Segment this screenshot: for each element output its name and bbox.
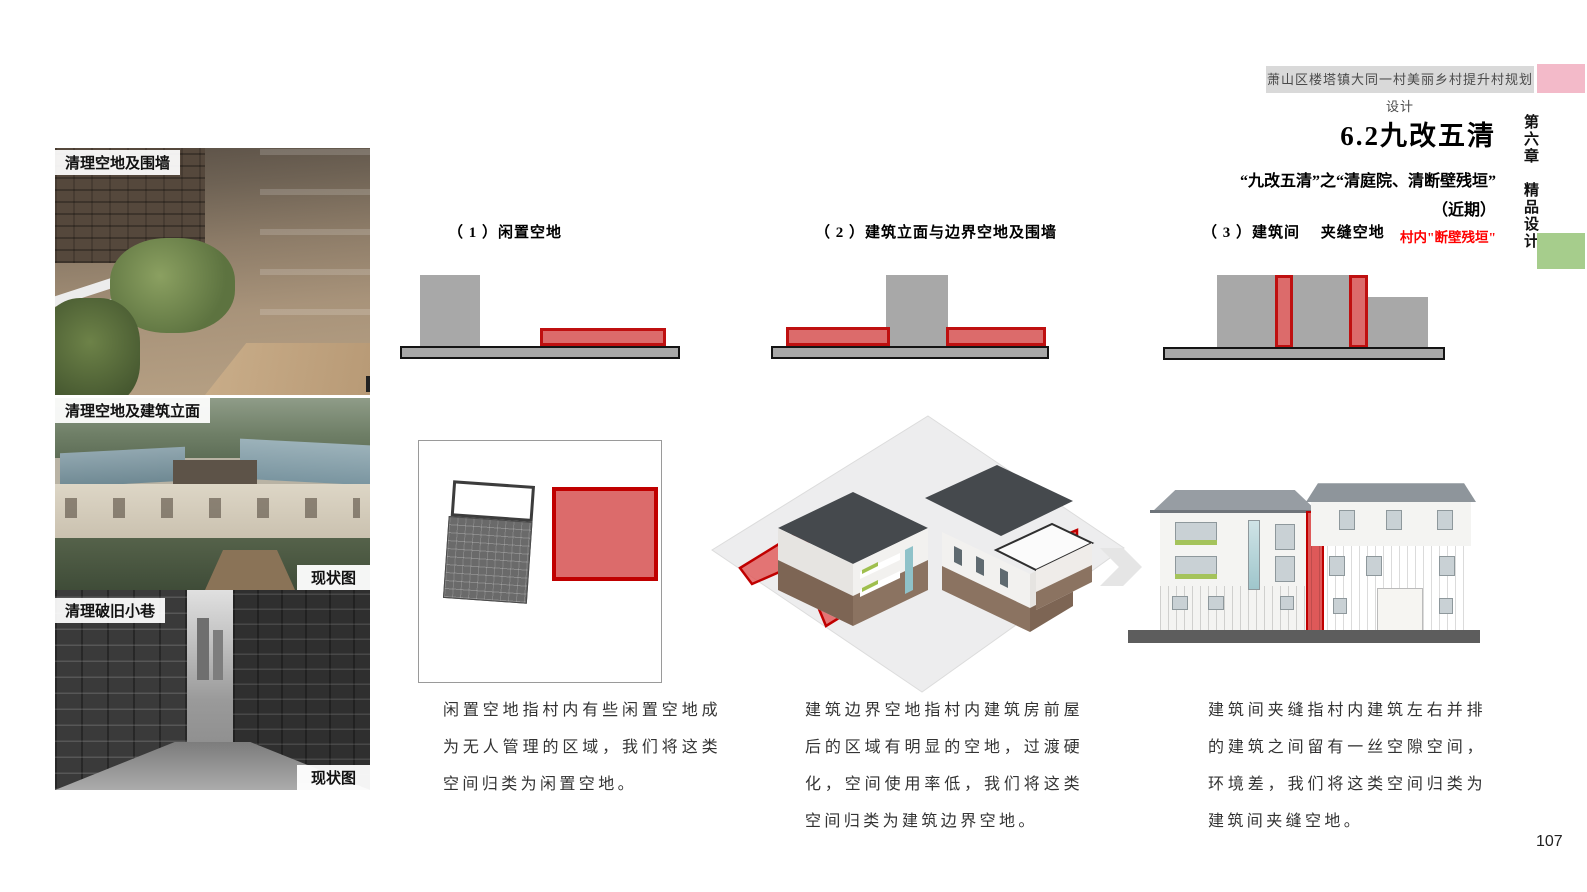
diagram3-ground-bar	[1163, 347, 1445, 360]
right-building-window	[1333, 598, 1347, 614]
right-building-garage	[1377, 588, 1423, 633]
elevation-ground-bar	[1128, 630, 1480, 643]
diagram3-gap-slot-left	[1275, 275, 1293, 348]
page-number: 107	[1536, 833, 1563, 851]
left-building-elevation	[1160, 490, 1310, 633]
column1-description: 闲置空地指村内有些闲置空地成为无人管理的区域，我们将这类空间归类为闲置空地。	[443, 691, 721, 802]
diagram1-building-block	[420, 275, 480, 346]
diagram1-ground-bar	[400, 346, 680, 359]
photo-art-roof-old	[173, 460, 257, 486]
green-chapter-tab	[1537, 233, 1585, 269]
photo-label: 清理空地及建筑立面	[55, 398, 210, 423]
photo-art-roof-right	[240, 439, 370, 486]
section-subtitle: “九改五清”之“清庭院、清断壁残垣”	[1240, 167, 1496, 191]
column2-description: 建筑边界空地指村内建筑房前屋后的区域有明显的空地，过渡硬化，空间使用率低，我们将…	[805, 691, 1083, 839]
photo-art-path	[205, 343, 370, 395]
left-building-window	[1280, 596, 1294, 610]
photo-caption: 现状图	[297, 565, 370, 590]
left-building-window	[1175, 556, 1217, 576]
left-building-window	[1275, 556, 1295, 582]
left-building-glass-strip	[1248, 520, 1260, 590]
photo-cleanup-facades: 清理空地及建筑立面 现状图	[55, 398, 370, 590]
left-building-planter	[1175, 574, 1217, 579]
left-building-window	[1275, 524, 1295, 550]
photo-art-windows	[65, 498, 360, 518]
right-building-window	[1329, 556, 1345, 576]
column3-description: 建筑间夹缝指村内建筑左右并排的建筑之间留有一丝空隙空间，环境差，我们将这类空间归…	[1208, 691, 1486, 839]
pink-chapter-tab	[1537, 64, 1585, 93]
clipped-caption-mark	[366, 376, 370, 392]
photo-art-greenery2	[55, 298, 140, 395]
chapter-label: 第六章 精品设计	[1520, 114, 1541, 250]
isometric-village-illustration	[700, 400, 1130, 700]
column2-heading: （ 2 ）建筑立面与边界空地及围墙	[815, 221, 1057, 242]
diagram2-boundary-space-left	[786, 327, 890, 346]
plan-building-roof	[443, 516, 533, 604]
photo-art-roof-left	[60, 447, 185, 488]
left-building-window	[1172, 596, 1188, 610]
right-building-window	[1366, 556, 1382, 576]
photo-label: 清理空地及围墙	[55, 150, 180, 175]
diagram2-building-block	[886, 275, 948, 346]
diagram3-gap-slot-right	[1349, 275, 1368, 348]
photo-cleanup-walls: 清理空地及围墙	[55, 148, 370, 395]
right-building-roof	[1306, 480, 1476, 502]
right-building-window	[1439, 598, 1453, 614]
document-page: 萧山区楼塔镇大同一村美丽乡村提升村规划设计 第六章 精品设计 6.2九改五清 “…	[0, 0, 1587, 892]
diagram3-building-block-short	[1368, 297, 1428, 347]
left-building-roof	[1152, 490, 1318, 512]
plan-view-panel	[418, 440, 662, 683]
photo-art-far-building2	[213, 630, 223, 680]
plan-building	[445, 480, 535, 603]
photo-art-far-building	[197, 618, 209, 680]
right-building-window	[1386, 510, 1402, 530]
photo-caption: 现状图	[297, 765, 370, 790]
column3-heading: （ 3 ）建筑间 夹缝空地	[1202, 221, 1385, 242]
diagram2-boundary-space-right	[946, 327, 1046, 346]
photo-label: 清理破旧小巷	[55, 598, 165, 623]
section-title: 6.2九改五清	[1240, 114, 1496, 153]
plan-idle-space-rect	[552, 487, 658, 581]
document-header: 萧山区楼塔镇大同一村美丽乡村提升村规划设计	[1266, 66, 1534, 93]
right-building-window	[1437, 510, 1453, 530]
section-term: （近期）	[1240, 196, 1496, 220]
right-building-elevation	[1311, 480, 1471, 633]
diagram1-idle-space-rect	[540, 328, 666, 346]
iso-house1-glass-strip	[905, 546, 913, 594]
left-building-planter	[1175, 540, 1217, 545]
diagram2-ground-bar	[771, 346, 1049, 359]
left-building-window	[1175, 522, 1217, 542]
left-building-window	[1208, 596, 1224, 610]
right-building-window	[1339, 510, 1355, 530]
right-building-window	[1439, 556, 1455, 576]
photo-cleanup-alley: 清理破旧小巷 现状图	[55, 590, 370, 790]
column1-heading: （ 1 ）闲置空地	[448, 221, 562, 242]
header-title: 萧山区楼塔镇大同一村美丽乡村提升村规划设计	[1267, 72, 1533, 114]
plan-building-courtyard	[451, 480, 535, 522]
